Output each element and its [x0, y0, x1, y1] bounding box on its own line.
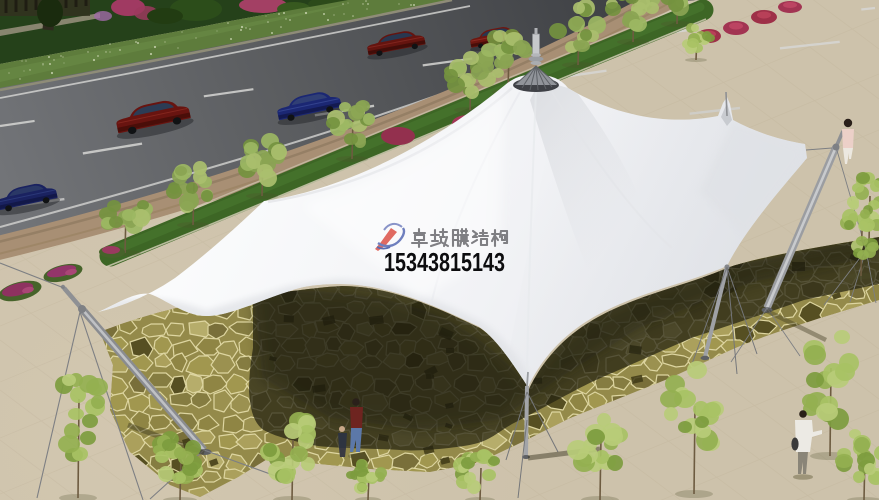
svg-text:15343815143: 15343815143 — [384, 247, 505, 277]
